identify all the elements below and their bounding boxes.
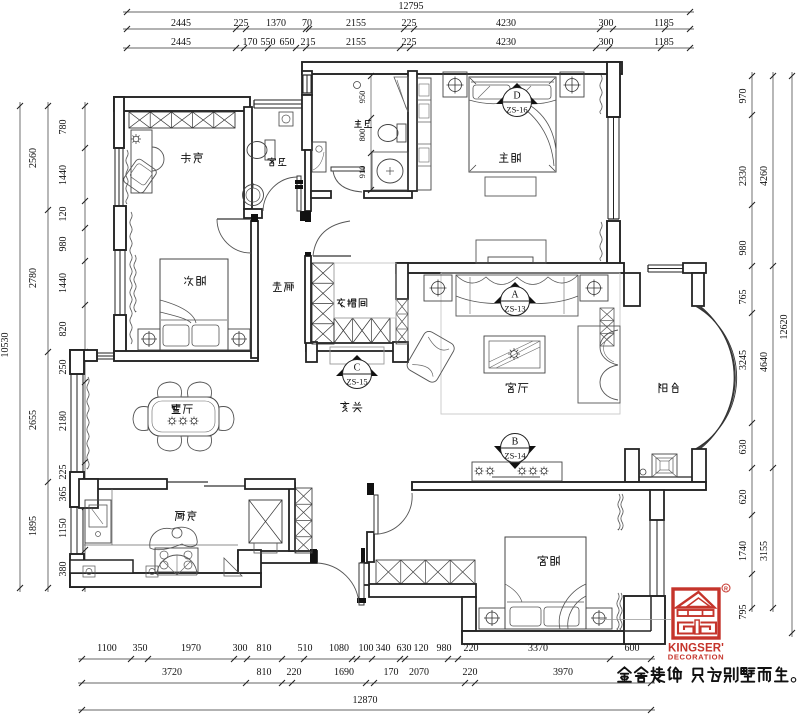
svg-text:510: 510 bbox=[298, 643, 313, 654]
svg-text:ZS-14: ZS-14 bbox=[504, 451, 526, 461]
svg-text:A: A bbox=[511, 290, 519, 301]
svg-text:1440: 1440 bbox=[58, 165, 69, 185]
svg-text:120: 120 bbox=[414, 643, 429, 654]
svg-text:225: 225 bbox=[402, 37, 417, 48]
svg-text:780: 780 bbox=[58, 120, 69, 135]
svg-text:550: 550 bbox=[261, 37, 276, 48]
svg-text:4230: 4230 bbox=[496, 37, 516, 48]
svg-text:3970: 3970 bbox=[553, 667, 573, 678]
svg-text:4260: 4260 bbox=[759, 166, 770, 186]
svg-text:3245: 3245 bbox=[738, 350, 749, 370]
svg-text:170: 170 bbox=[384, 667, 399, 678]
svg-text:220: 220 bbox=[287, 667, 302, 678]
svg-text:120: 120 bbox=[58, 207, 69, 222]
svg-text:2155: 2155 bbox=[346, 37, 366, 48]
svg-text:70: 70 bbox=[302, 18, 312, 29]
svg-text:300: 300 bbox=[599, 37, 614, 48]
svg-text:300: 300 bbox=[233, 643, 248, 654]
svg-text:170: 170 bbox=[243, 37, 258, 48]
svg-text:D: D bbox=[513, 91, 520, 102]
svg-text:950: 950 bbox=[357, 91, 367, 104]
svg-text:2780: 2780 bbox=[28, 268, 39, 288]
svg-text:ZS-15: ZS-15 bbox=[346, 377, 367, 387]
svg-text:2155: 2155 bbox=[346, 18, 366, 29]
svg-text:980: 980 bbox=[437, 643, 452, 654]
svg-text:1895: 1895 bbox=[28, 516, 39, 536]
svg-text:980: 980 bbox=[738, 241, 749, 256]
svg-text:630: 630 bbox=[738, 440, 749, 455]
svg-text:ZS-16: ZS-16 bbox=[506, 105, 527, 115]
svg-text:2560: 2560 bbox=[28, 148, 39, 168]
svg-text:3720: 3720 bbox=[162, 667, 182, 678]
svg-text:765: 765 bbox=[738, 290, 749, 305]
svg-text:ZS-13: ZS-13 bbox=[504, 304, 525, 314]
svg-text:820: 820 bbox=[58, 322, 69, 337]
svg-text:2070: 2070 bbox=[409, 667, 429, 678]
svg-text:340: 340 bbox=[376, 643, 391, 654]
svg-text:630: 630 bbox=[397, 643, 412, 654]
svg-text:225: 225 bbox=[58, 465, 69, 480]
svg-text:1690: 1690 bbox=[334, 667, 354, 678]
svg-text:100: 100 bbox=[359, 643, 374, 654]
svg-text:225: 225 bbox=[402, 18, 417, 29]
svg-text:365: 365 bbox=[58, 487, 69, 502]
svg-text:1740: 1740 bbox=[738, 541, 749, 561]
svg-text:1100: 1100 bbox=[97, 643, 117, 654]
svg-text:215: 215 bbox=[301, 37, 316, 48]
svg-text:2330: 2330 bbox=[738, 166, 749, 186]
svg-text:12870: 12870 bbox=[353, 695, 378, 706]
svg-text:300: 300 bbox=[599, 18, 614, 29]
svg-text:1185: 1185 bbox=[654, 18, 674, 29]
svg-text:B: B bbox=[512, 437, 519, 448]
svg-text:650: 650 bbox=[280, 37, 295, 48]
svg-text:2655: 2655 bbox=[28, 410, 39, 430]
svg-text:10530: 10530 bbox=[0, 333, 11, 358]
svg-text:810: 810 bbox=[257, 667, 272, 678]
svg-text:R: R bbox=[724, 587, 728, 593]
svg-text:12795: 12795 bbox=[399, 1, 424, 12]
svg-text:970: 970 bbox=[738, 89, 749, 104]
svg-text:350: 350 bbox=[133, 643, 148, 654]
svg-text:380: 380 bbox=[58, 562, 69, 577]
svg-text:795: 795 bbox=[738, 605, 749, 620]
svg-text:1080: 1080 bbox=[329, 643, 349, 654]
svg-text:250: 250 bbox=[58, 360, 69, 375]
svg-text:1440: 1440 bbox=[58, 273, 69, 293]
svg-text:1970: 1970 bbox=[181, 643, 201, 654]
svg-text:225: 225 bbox=[234, 18, 249, 29]
svg-text:1150: 1150 bbox=[58, 518, 69, 538]
svg-text:2445: 2445 bbox=[171, 37, 191, 48]
svg-text:810: 810 bbox=[257, 643, 272, 654]
svg-text:DECORATION: DECORATION bbox=[668, 653, 724, 662]
svg-text:980: 980 bbox=[58, 237, 69, 252]
svg-text:220: 220 bbox=[463, 667, 478, 678]
svg-text:3155: 3155 bbox=[759, 541, 770, 561]
svg-text:1370: 1370 bbox=[266, 18, 286, 29]
svg-text:C: C bbox=[354, 363, 361, 374]
svg-text:2180: 2180 bbox=[58, 411, 69, 431]
svg-text:910: 910 bbox=[357, 166, 367, 179]
svg-text:620: 620 bbox=[738, 490, 749, 505]
svg-text:12620: 12620 bbox=[779, 315, 790, 340]
svg-text:4230: 4230 bbox=[496, 18, 516, 29]
svg-text:800: 800 bbox=[357, 129, 367, 142]
svg-text:4640: 4640 bbox=[759, 352, 770, 372]
svg-text:2445: 2445 bbox=[171, 18, 191, 29]
svg-text:1185: 1185 bbox=[654, 37, 674, 48]
